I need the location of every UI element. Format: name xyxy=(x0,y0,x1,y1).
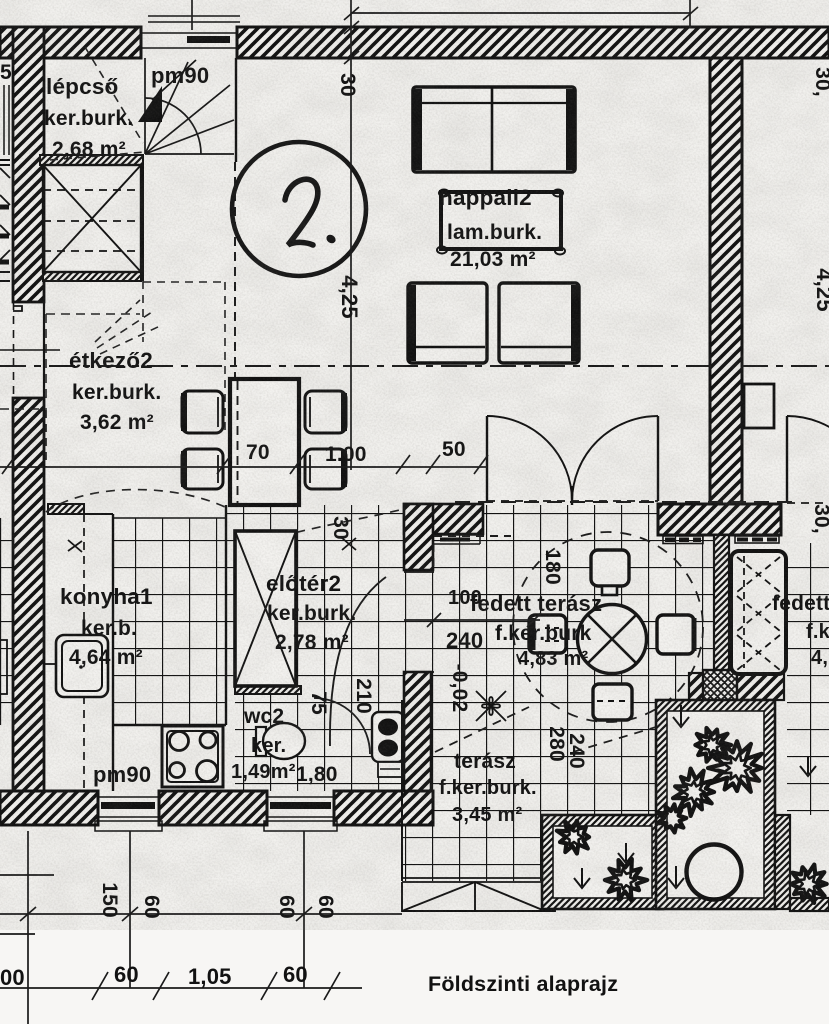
svg-text:1,05: 1,05 xyxy=(188,964,232,989)
svg-text:60: 60 xyxy=(283,962,308,987)
svg-text:00: 00 xyxy=(0,965,25,990)
svg-text:Földszinti alaprajz: Földszinti alaprajz xyxy=(428,972,618,996)
svg-text:60: 60 xyxy=(114,962,139,987)
